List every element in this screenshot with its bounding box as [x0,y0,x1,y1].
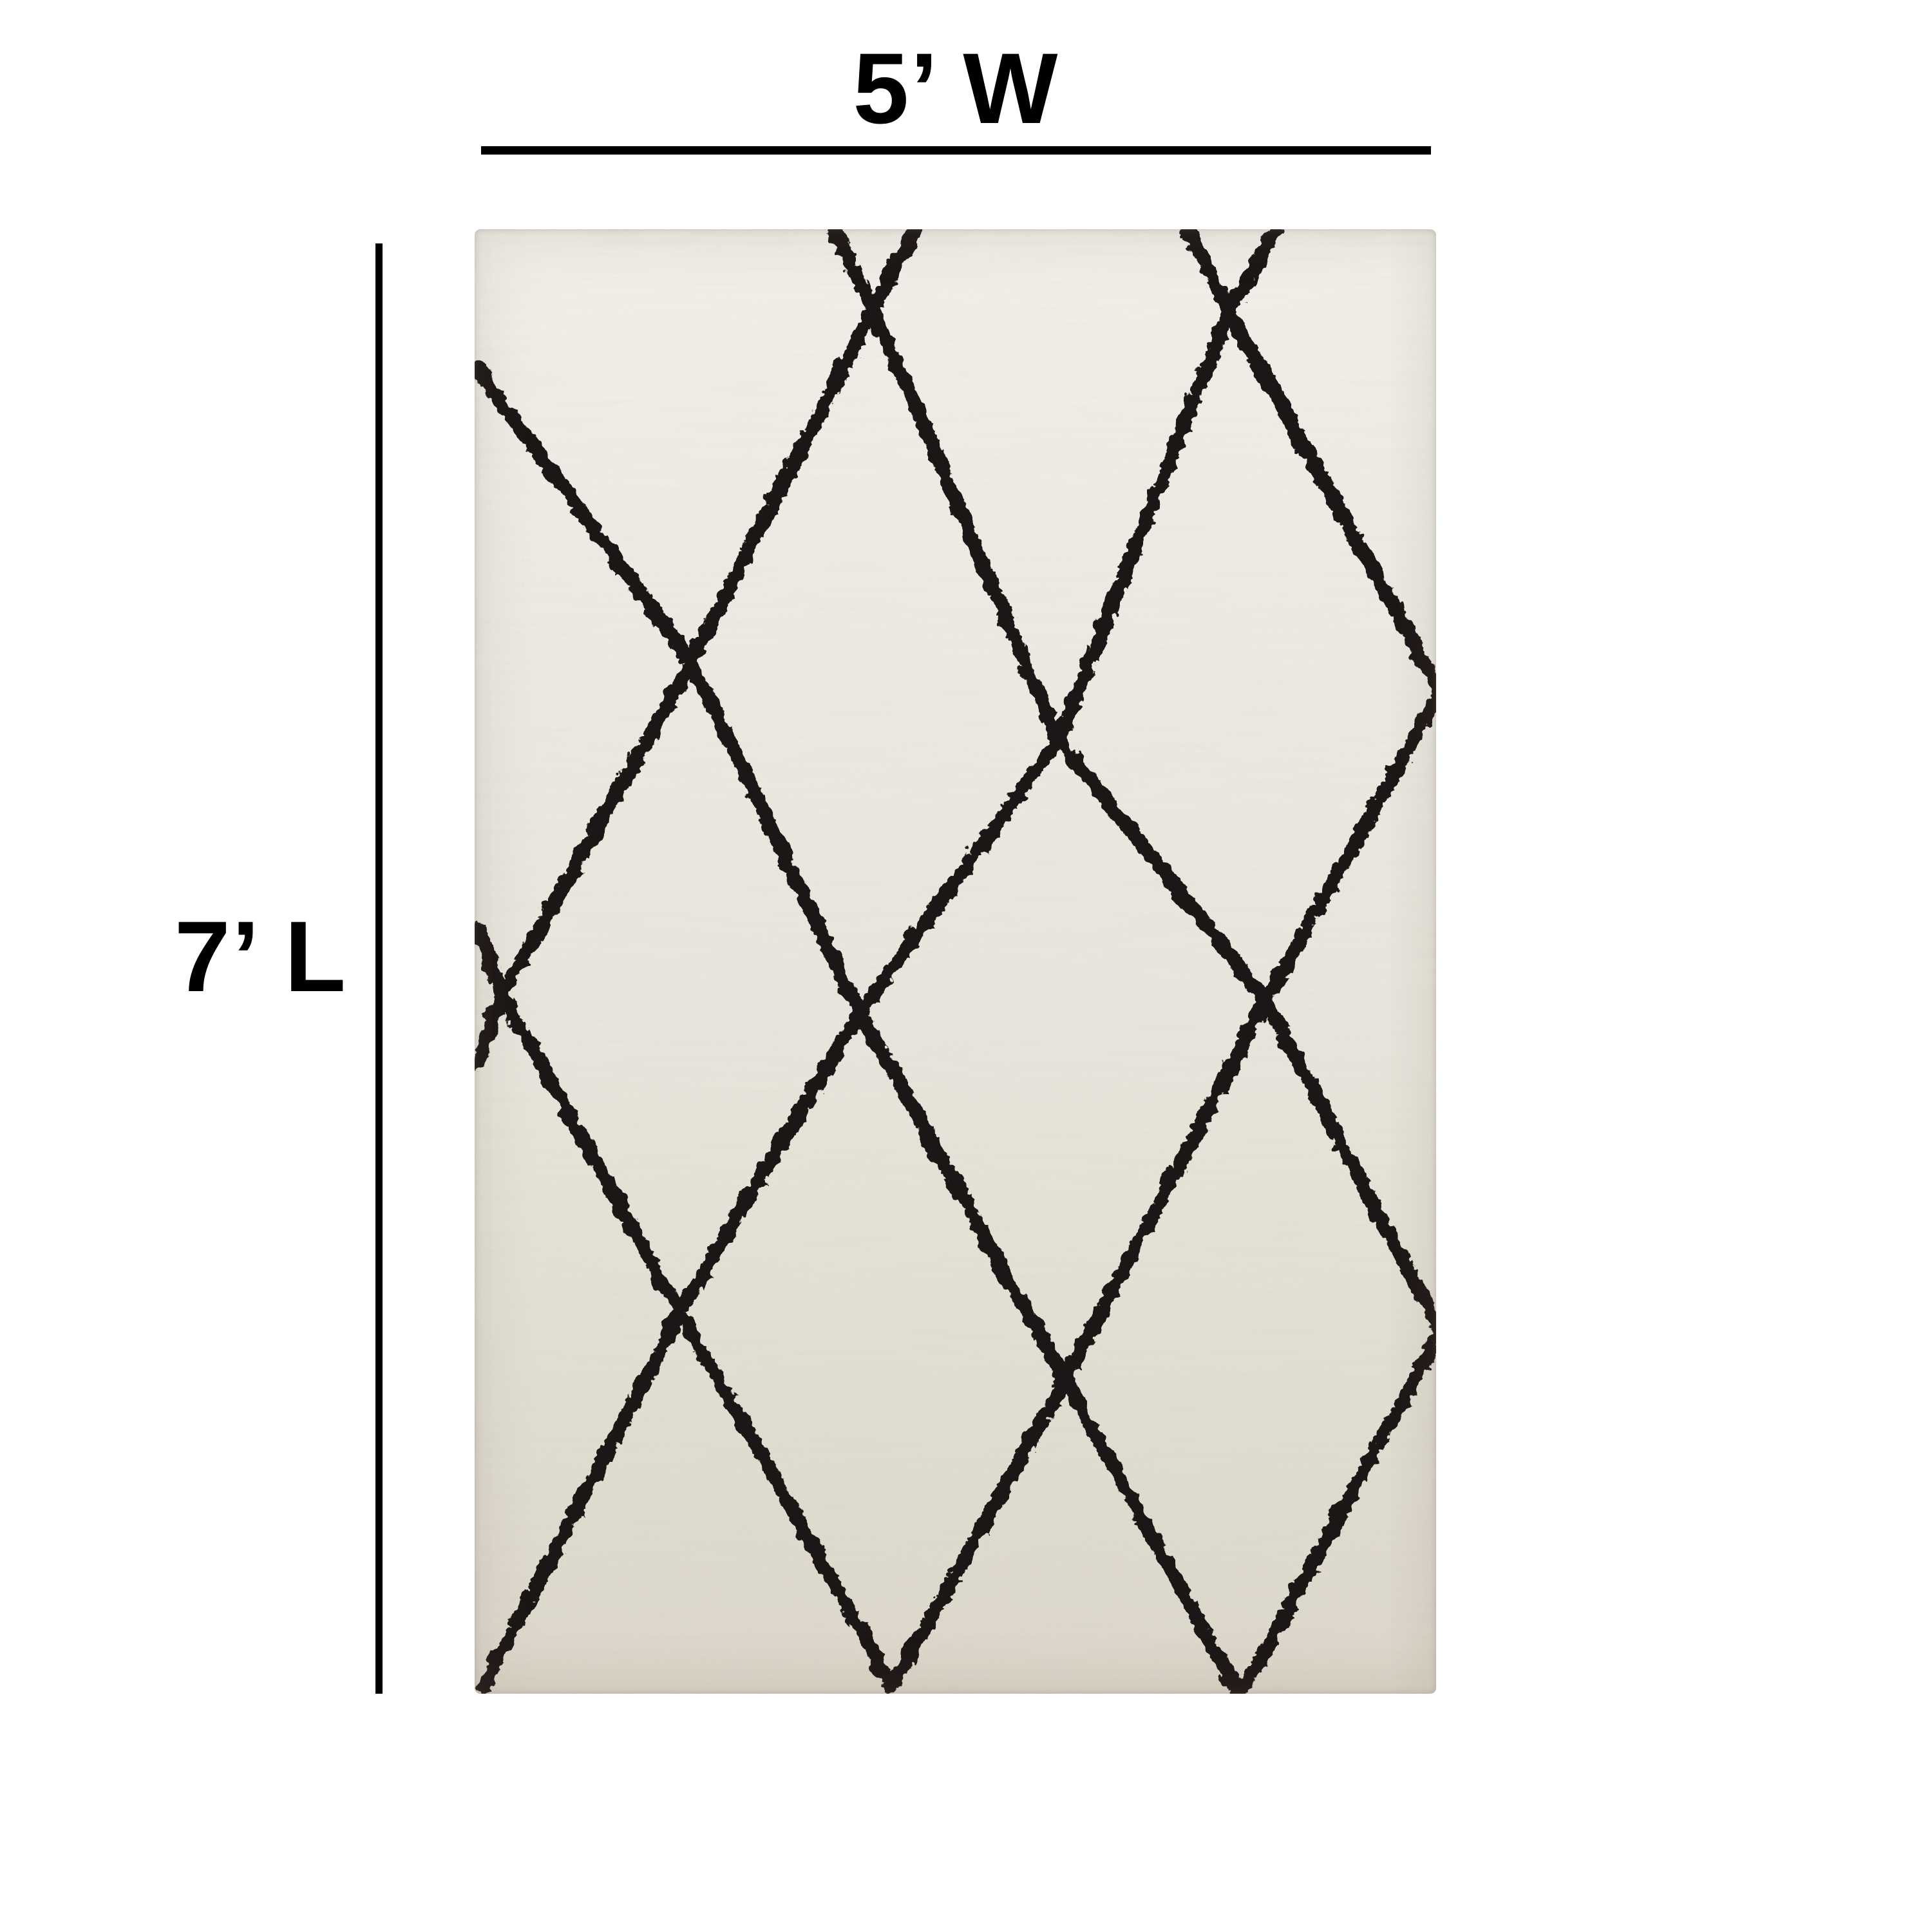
rug-pattern-svg [475,229,1436,1694]
product-dimension-diagram: 5’ W 7’ L [0,0,1932,1932]
width-dimension-label: 5’ W [481,39,1431,139]
width-dimension-line [481,146,1431,155]
rug-image [475,229,1436,1694]
length-dimension-label: 7’ L [161,907,361,1007]
length-dimension-line [375,243,383,1694]
